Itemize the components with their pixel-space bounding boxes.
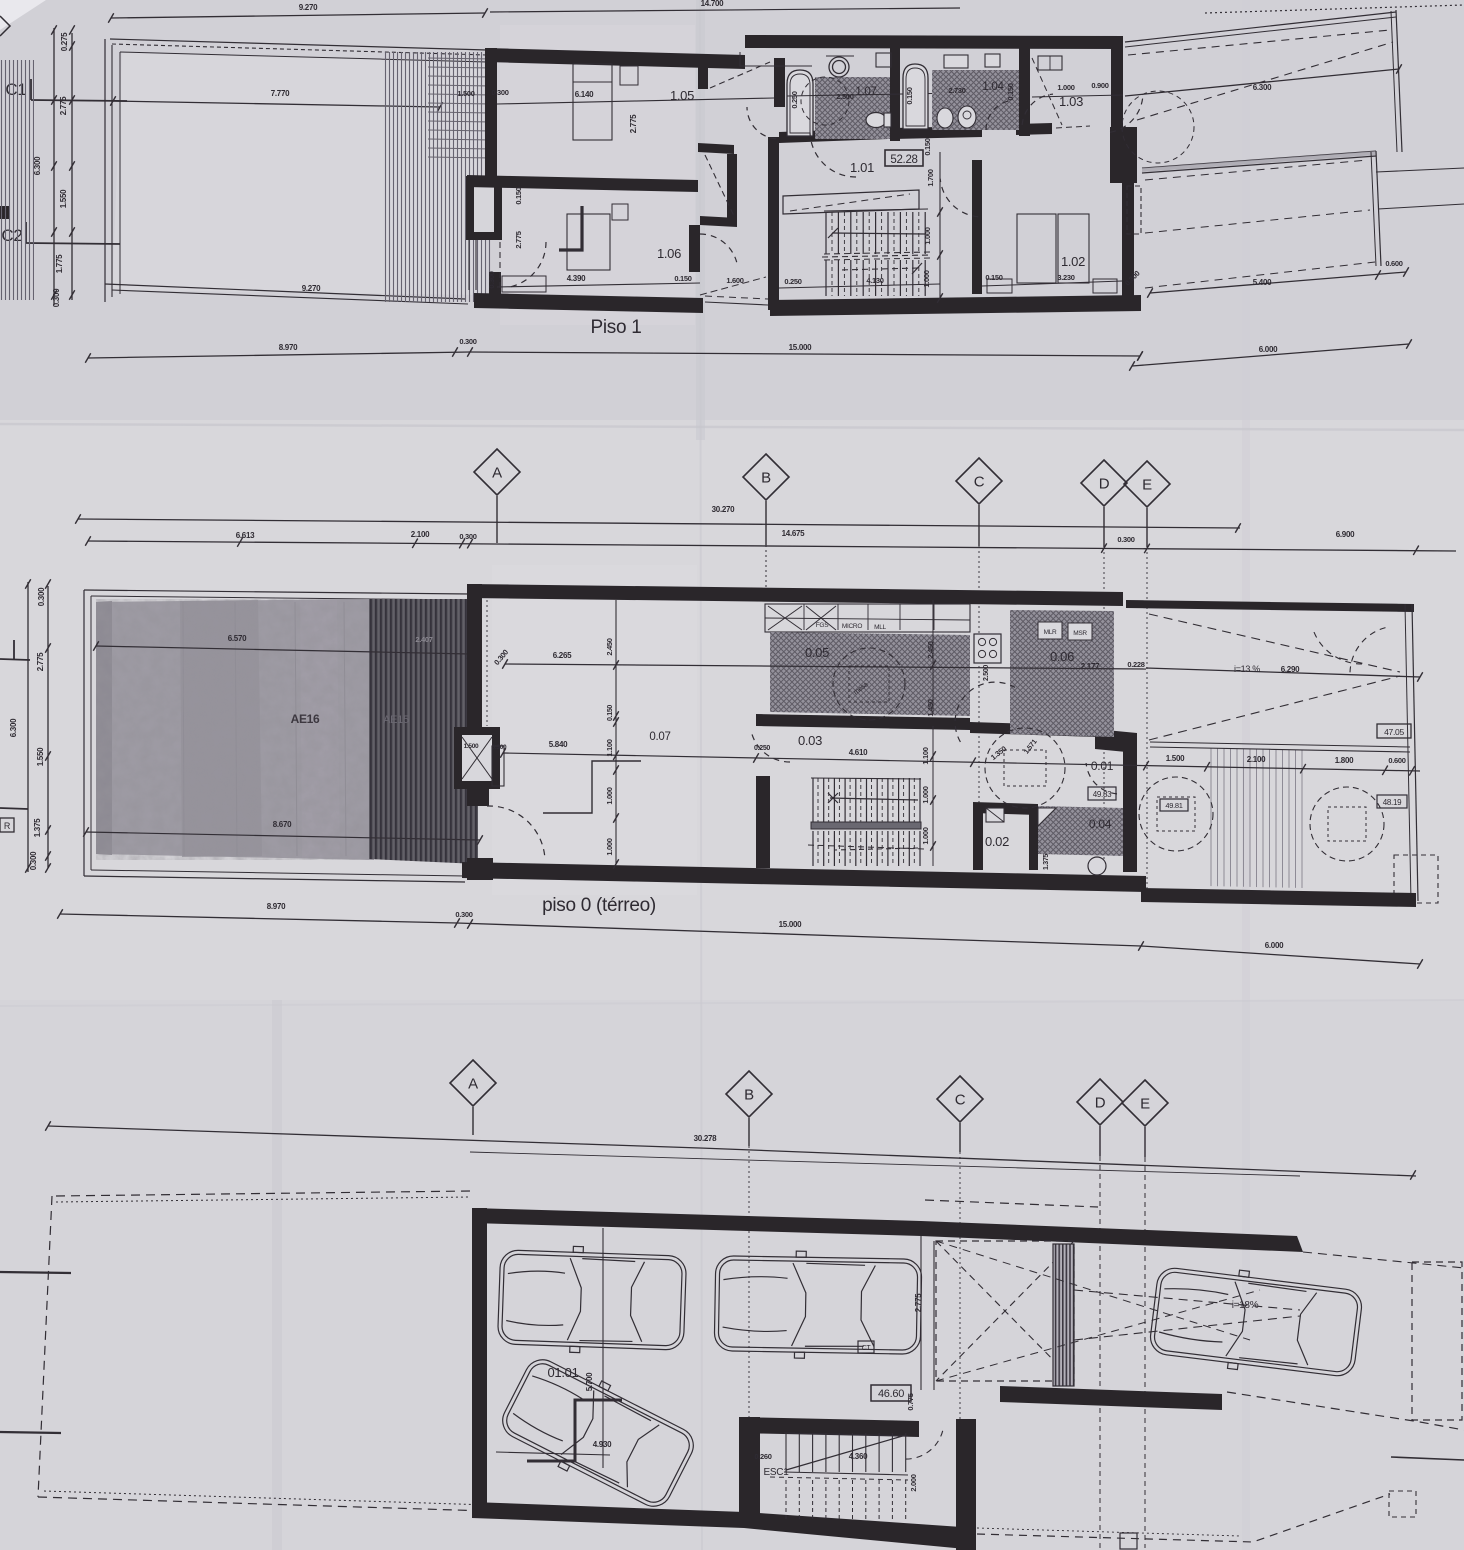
svg-text:6.300: 6.300 <box>1253 83 1272 92</box>
svg-text:6.140: 6.140 <box>575 90 594 99</box>
svg-text:2.730: 2.730 <box>948 86 965 95</box>
svg-text:6.613: 6.613 <box>236 531 255 540</box>
svg-text:1.500: 1.500 <box>1166 754 1185 763</box>
svg-text:MICRO: MICRO <box>842 623 862 630</box>
svg-text:0.250: 0.250 <box>790 91 799 108</box>
svg-text:1.000: 1.000 <box>605 838 614 855</box>
svg-text:2.775: 2.775 <box>59 96 68 115</box>
svg-text:1.550: 1.550 <box>36 747 45 766</box>
svg-text:2.407: 2.407 <box>415 635 432 644</box>
svg-text:B: B <box>744 1087 754 1104</box>
svg-text:ESC1: ESC1 <box>764 1467 790 1478</box>
svg-text:1.800: 1.800 <box>1335 756 1354 765</box>
svg-text:2.100: 2.100 <box>411 530 430 539</box>
svg-text:1.000: 1.000 <box>923 227 932 244</box>
svg-text:0.07: 0.07 <box>649 731 670 743</box>
svg-text:0.300: 0.300 <box>29 851 38 870</box>
svg-text:0.260: 0.260 <box>754 1452 771 1461</box>
svg-text:1.775: 1.775 <box>55 254 64 273</box>
svg-text:1.000: 1.000 <box>921 827 930 844</box>
svg-text:0.300: 0.300 <box>52 288 61 307</box>
svg-text:0.275: 0.275 <box>60 32 69 51</box>
svg-text:0.150: 0.150 <box>607 705 614 721</box>
svg-text:B: B <box>761 470 771 487</box>
svg-text:0.01: 0.01 <box>1091 759 1114 773</box>
svg-text:48.19: 48.19 <box>1383 798 1402 807</box>
svg-text:A: A <box>468 1076 478 1093</box>
svg-text:0.300: 0.300 <box>492 744 507 751</box>
svg-text:C: C <box>955 1092 966 1109</box>
svg-text:0.250: 0.250 <box>754 745 770 752</box>
svg-text:1.01: 1.01 <box>850 160 874 175</box>
svg-text:1.600: 1.600 <box>726 276 743 285</box>
svg-text:0.228: 0.228 <box>1127 660 1144 669</box>
svg-text:2.000: 2.000 <box>909 1474 918 1491</box>
svg-text:6.570: 6.570 <box>228 634 247 643</box>
svg-text:6.300: 6.300 <box>9 718 18 737</box>
svg-text:1.000: 1.000 <box>1057 83 1074 92</box>
svg-text:E: E <box>1142 477 1152 494</box>
svg-text:1.550: 1.550 <box>59 189 68 208</box>
svg-text:Piso 1: Piso 1 <box>590 317 641 338</box>
svg-text:2.177: 2.177 <box>1081 662 1100 671</box>
svg-text:8.970: 8.970 <box>267 902 286 911</box>
svg-text:9.270: 9.270 <box>299 3 318 12</box>
svg-text:1.375: 1.375 <box>33 818 42 837</box>
svg-text:4.360: 4.360 <box>849 1452 868 1461</box>
svg-text:0.150: 0.150 <box>985 273 1002 282</box>
svg-text:1.100: 1.100 <box>605 739 614 756</box>
svg-text:1.04: 1.04 <box>982 81 1004 93</box>
svg-text:1.000: 1.000 <box>921 786 930 803</box>
svg-text:30.270: 30.270 <box>712 505 736 514</box>
svg-text:0.03: 0.03 <box>798 733 822 748</box>
svg-text:0.02: 0.02 <box>985 834 1009 849</box>
svg-text:R: R <box>4 821 11 831</box>
svg-text:FGS: FGS <box>816 622 829 629</box>
svg-text:0.04: 0.04 <box>1089 817 1112 831</box>
svg-text:4.390: 4.390 <box>567 274 586 283</box>
svg-text:46.60: 46.60 <box>878 1388 904 1400</box>
svg-text:0.300: 0.300 <box>1117 535 1134 544</box>
svg-text:CT: CT <box>862 1345 872 1352</box>
svg-text:0.600: 0.600 <box>1385 259 1402 268</box>
svg-text:i=13 %: i=13 % <box>1234 664 1260 674</box>
svg-text:1.05: 1.05 <box>670 88 694 103</box>
svg-text:A: A <box>492 465 502 482</box>
svg-text:30.278: 30.278 <box>694 1134 718 1143</box>
svg-text:8.970: 8.970 <box>279 343 298 352</box>
svg-text:15.000: 15.000 <box>779 920 803 929</box>
svg-text:14.700: 14.700 <box>701 0 725 8</box>
svg-text:1.450: 1.450 <box>926 699 935 716</box>
svg-text:2.500: 2.500 <box>836 92 853 101</box>
svg-text:0.150: 0.150 <box>905 87 914 104</box>
svg-text:MLL: MLL <box>874 624 886 631</box>
svg-text:0.150: 0.150 <box>674 274 691 283</box>
svg-text:6.000: 6.000 <box>1265 941 1284 950</box>
svg-text:1.500: 1.500 <box>457 89 474 98</box>
svg-text:2.775: 2.775 <box>36 652 45 671</box>
svg-text:6.300: 6.300 <box>33 156 42 175</box>
svg-text:0.150: 0.150 <box>923 138 932 155</box>
svg-text:49.83: 49.83 <box>1093 790 1112 799</box>
svg-text:MSR: MSR <box>1073 630 1087 637</box>
svg-text:0.300: 0.300 <box>455 910 472 919</box>
svg-text:2.775: 2.775 <box>514 231 523 248</box>
svg-text:47.05: 47.05 <box>1384 727 1404 737</box>
svg-text:MLR: MLR <box>1044 629 1057 636</box>
svg-text:AE15: AE15 <box>383 714 409 726</box>
svg-text:0.150: 0.150 <box>1006 83 1015 100</box>
svg-text:5.400: 5.400 <box>1253 278 1272 287</box>
svg-text:5.840: 5.840 <box>549 740 568 749</box>
svg-text:1.06: 1.06 <box>657 246 681 261</box>
svg-text:0.300: 0.300 <box>37 587 46 606</box>
svg-text:4.930: 4.930 <box>593 1440 612 1449</box>
svg-text:49.81: 49.81 <box>1165 801 1182 810</box>
svg-text:4.130: 4.130 <box>866 276 883 285</box>
svg-text:0.05: 0.05 <box>805 645 829 660</box>
svg-text:2.450: 2.450 <box>926 641 935 658</box>
svg-text:AE16: AE16 <box>291 712 320 726</box>
svg-text:52.28: 52.28 <box>890 154 917 166</box>
svg-text:E: E <box>1140 1096 1150 1113</box>
svg-text:0.06: 0.06 <box>1050 649 1074 664</box>
svg-text:0.300: 0.300 <box>459 337 476 346</box>
svg-text:14.675: 14.675 <box>782 529 806 538</box>
svg-text:2.775: 2.775 <box>629 114 638 133</box>
svg-text:2.100: 2.100 <box>1247 755 1266 764</box>
svg-text:0.300: 0.300 <box>487 271 496 288</box>
svg-text:1.000: 1.000 <box>605 787 614 804</box>
svg-text:7.770: 7.770 <box>271 89 290 98</box>
svg-text:4.610: 4.610 <box>849 748 868 757</box>
svg-text:piso 0 (térreo): piso 0 (térreo) <box>542 895 656 916</box>
svg-text:0.600: 0.600 <box>1388 756 1405 765</box>
svg-text:6.265: 6.265 <box>553 651 572 660</box>
svg-text:C: C <box>974 474 985 491</box>
svg-text:1.100: 1.100 <box>921 747 930 764</box>
svg-text:0.300: 0.300 <box>459 532 476 541</box>
svg-text:D: D <box>1095 1095 1106 1112</box>
svg-text:6.000: 6.000 <box>1259 345 1278 354</box>
svg-text:0.300: 0.300 <box>491 88 508 97</box>
svg-text:1.07: 1.07 <box>855 86 876 98</box>
svg-text:2.450: 2.450 <box>605 638 614 655</box>
svg-text:0.150: 0.150 <box>514 187 523 204</box>
svg-text:9.270: 9.270 <box>302 284 321 293</box>
svg-text:1.500: 1.500 <box>464 743 479 750</box>
svg-text:5.700: 5.700 <box>585 1372 594 1391</box>
svg-text:2.500: 2.500 <box>983 665 990 681</box>
svg-text:1.000: 1.000 <box>922 270 931 287</box>
svg-text:01.01: 01.01 <box>547 1365 578 1380</box>
svg-text:2.775: 2.775 <box>914 1293 923 1312</box>
svg-text:D: D <box>1099 476 1110 493</box>
svg-text:3.230: 3.230 <box>1057 273 1074 282</box>
svg-text:8.670: 8.670 <box>273 820 292 829</box>
svg-text:0.250: 0.250 <box>784 277 801 286</box>
svg-text:0.900: 0.900 <box>1091 81 1108 90</box>
svg-text:15.000: 15.000 <box>789 343 813 352</box>
svg-text:1.700: 1.700 <box>926 169 935 186</box>
svg-text:6.900: 6.900 <box>1336 530 1355 539</box>
svg-text:1.375: 1.375 <box>1043 854 1050 870</box>
svg-text:1.02: 1.02 <box>1061 254 1085 269</box>
